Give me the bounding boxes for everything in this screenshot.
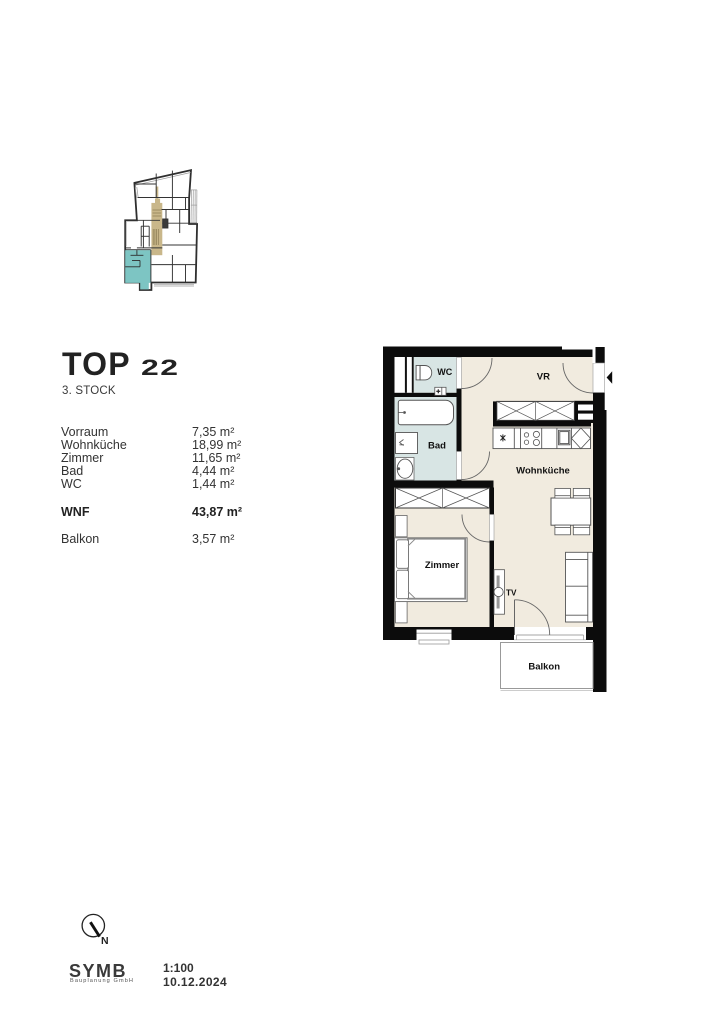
svg-text:WC: WC <box>437 367 452 377</box>
svg-text:N: N <box>101 935 109 947</box>
svg-text:VR: VR <box>537 371 550 382</box>
svg-text:TV: TV <box>506 588 517 597</box>
svg-text:Wohnküche: Wohnküche <box>516 466 570 477</box>
svg-text:Balkon: Balkon <box>528 661 560 672</box>
svg-text:Bad: Bad <box>428 440 446 451</box>
svg-text:Zimmer: Zimmer <box>425 560 460 571</box>
